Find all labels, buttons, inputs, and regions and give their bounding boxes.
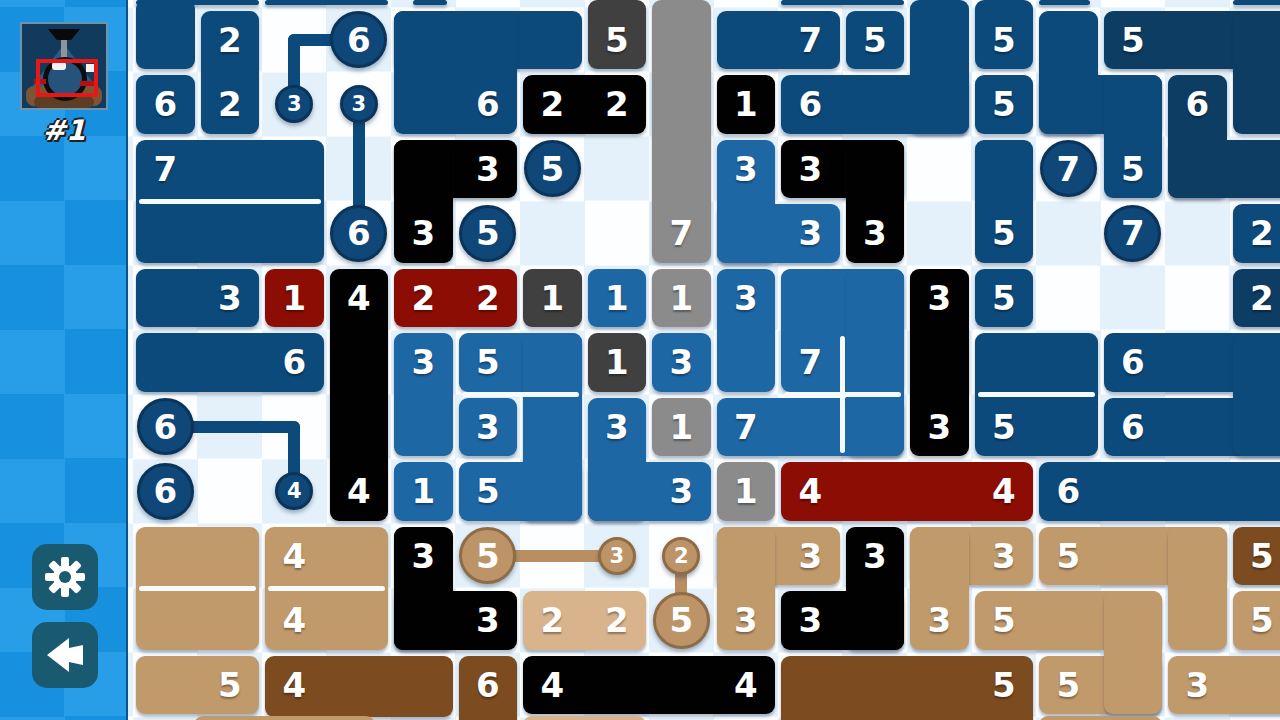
block-number: 2 (391, 266, 456, 331)
back-arrow-icon (43, 635, 87, 675)
block-number: 3 (843, 201, 908, 266)
block-number: 6 (1101, 395, 1166, 460)
block-number: 3 (714, 266, 779, 331)
settings-button[interactable] (32, 544, 98, 610)
clue-circle[interactable]: 6 (137, 398, 194, 455)
block-number: 3 (778, 524, 843, 589)
block-number: 4 (520, 653, 585, 718)
block-number: 3 (714, 137, 779, 202)
puzzle-app: { "sidebar": { "thumbnail_label": "#1", … (0, 0, 1280, 720)
puzzle-block[interactable] (781, 0, 904, 5)
block-number: 3 (391, 524, 456, 589)
block-number: 5 (1036, 653, 1101, 718)
block-number: 3 (198, 266, 263, 331)
block-number: 6 (133, 72, 198, 137)
clue-circle[interactable]: 6 (330, 205, 387, 262)
block-number: 5 (1101, 137, 1166, 202)
block-number: 1 (391, 459, 456, 524)
viewport-indicator (36, 59, 98, 97)
block-number: 5 (972, 653, 1037, 718)
clue-circle[interactable]: 5 (524, 140, 581, 197)
block-number: 4 (262, 524, 327, 589)
block-number: 3 (714, 588, 779, 653)
block-number: 7 (778, 330, 843, 395)
block-number: 5 (456, 459, 521, 524)
block-number: 1 (585, 330, 650, 395)
block-number: 1 (714, 72, 779, 137)
block-number: 3 (391, 330, 456, 395)
block-number: 1 (585, 266, 650, 331)
puzzle-block[interactable] (1233, 0, 1280, 5)
block-number: 3 (585, 395, 650, 460)
block-number: 5 (1230, 588, 1280, 653)
puzzle-block[interactable] (1039, 0, 1090, 5)
block-number: 3 (456, 395, 521, 460)
block-number: 3 (1165, 653, 1230, 718)
puzzle-block[interactable] (413, 0, 447, 5)
puzzle-block[interactable] (1104, 591, 1163, 714)
block-number: 4 (714, 653, 779, 718)
block-number: 6 (456, 653, 521, 718)
block-number: 6 (262, 330, 327, 395)
block-number: 5 (972, 588, 1037, 653)
block-number: 5 (1036, 524, 1101, 589)
block-number: 6 (1101, 330, 1166, 395)
block-number: 6 (456, 72, 521, 137)
block-number: 7 (778, 8, 843, 73)
block-number: 3 (456, 137, 521, 202)
puzzle-block[interactable] (1233, 333, 1280, 456)
block-number: 3 (907, 266, 972, 331)
block-number: 7 (649, 201, 714, 266)
block-number: 3 (972, 524, 1037, 589)
block-number: 2 (1230, 201, 1280, 266)
gear-icon (44, 556, 86, 598)
block-number: 5 (198, 653, 263, 718)
block-number: 6 (1165, 72, 1230, 137)
block-number: 2 (1230, 266, 1280, 331)
clue-circle[interactable]: 5 (653, 592, 710, 649)
clue-circle[interactable]: 3 (340, 85, 378, 123)
block-number: 2 (585, 72, 650, 137)
block-number: 4 (262, 588, 327, 653)
block-number: 5 (843, 8, 908, 73)
block-number: 2 (520, 588, 585, 653)
block-number: 4 (262, 653, 327, 718)
puzzle-block[interactable] (265, 0, 388, 5)
block-number: 1 (714, 459, 779, 524)
puzzle-block[interactable] (1168, 527, 1227, 650)
block-number: 7 (133, 137, 198, 202)
level-number-label: #1 (0, 114, 128, 147)
block-number: 4 (972, 459, 1037, 524)
block-number: 5 (456, 330, 521, 395)
block-number: 1 (649, 395, 714, 460)
clue-circle[interactable]: 6 (137, 463, 194, 520)
block-number: 4 (327, 459, 392, 524)
block-number: 3 (907, 395, 972, 460)
clue-circle[interactable]: 7 (1104, 205, 1161, 262)
block-number: 3 (778, 137, 843, 202)
block-number: 3 (778, 201, 843, 266)
block-number: 2 (520, 72, 585, 137)
clue-circle[interactable]: 2 (662, 537, 700, 575)
sidebar: #1 (0, 0, 128, 720)
block-number: 3 (456, 588, 521, 653)
block-number: 5 (1101, 8, 1166, 73)
level-preview-thumbnail[interactable] (20, 22, 108, 110)
block-number: 5 (972, 72, 1037, 137)
block-number: 2 (456, 266, 521, 331)
back-button[interactable] (32, 622, 98, 688)
block-number: 1 (649, 266, 714, 331)
block-number: 2 (198, 72, 263, 137)
puzzle-block[interactable] (1168, 140, 1280, 199)
block-number: 3 (778, 588, 843, 653)
block-number: 5 (972, 8, 1037, 73)
block-number: 3 (649, 459, 714, 524)
block-number: 5 (1230, 524, 1280, 589)
puzzle-grid[interactable]: 2267366756555525625722133333314422111377… (128, 0, 1280, 720)
block-number: 6 (1036, 459, 1101, 524)
block-number: 5 (972, 395, 1037, 460)
puzzle-block[interactable] (136, 0, 195, 69)
block-number: 5 (585, 8, 650, 73)
block-number: 7 (714, 395, 779, 460)
block-number: 3 (843, 524, 908, 589)
block-number: 6 (778, 72, 843, 137)
block-number: 4 (327, 266, 392, 331)
block-number: 5 (972, 266, 1037, 331)
block-number: 1 (262, 266, 327, 331)
block-number: 1 (520, 266, 585, 331)
block-number: 5 (972, 201, 1037, 266)
block-number: 3 (907, 588, 972, 653)
block-number: 2 (198, 8, 263, 73)
clue-circle[interactable]: 3 (598, 537, 636, 575)
clue-circle[interactable]: 5 (459, 205, 516, 262)
block-number: 3 (649, 330, 714, 395)
block-number: 2 (585, 588, 650, 653)
block-number: 3 (391, 201, 456, 266)
clue-circle[interactable]: 7 (1040, 140, 1097, 197)
block-number: 4 (778, 459, 843, 524)
puzzle-block[interactable] (1233, 11, 1280, 134)
piece-separator (139, 586, 256, 591)
